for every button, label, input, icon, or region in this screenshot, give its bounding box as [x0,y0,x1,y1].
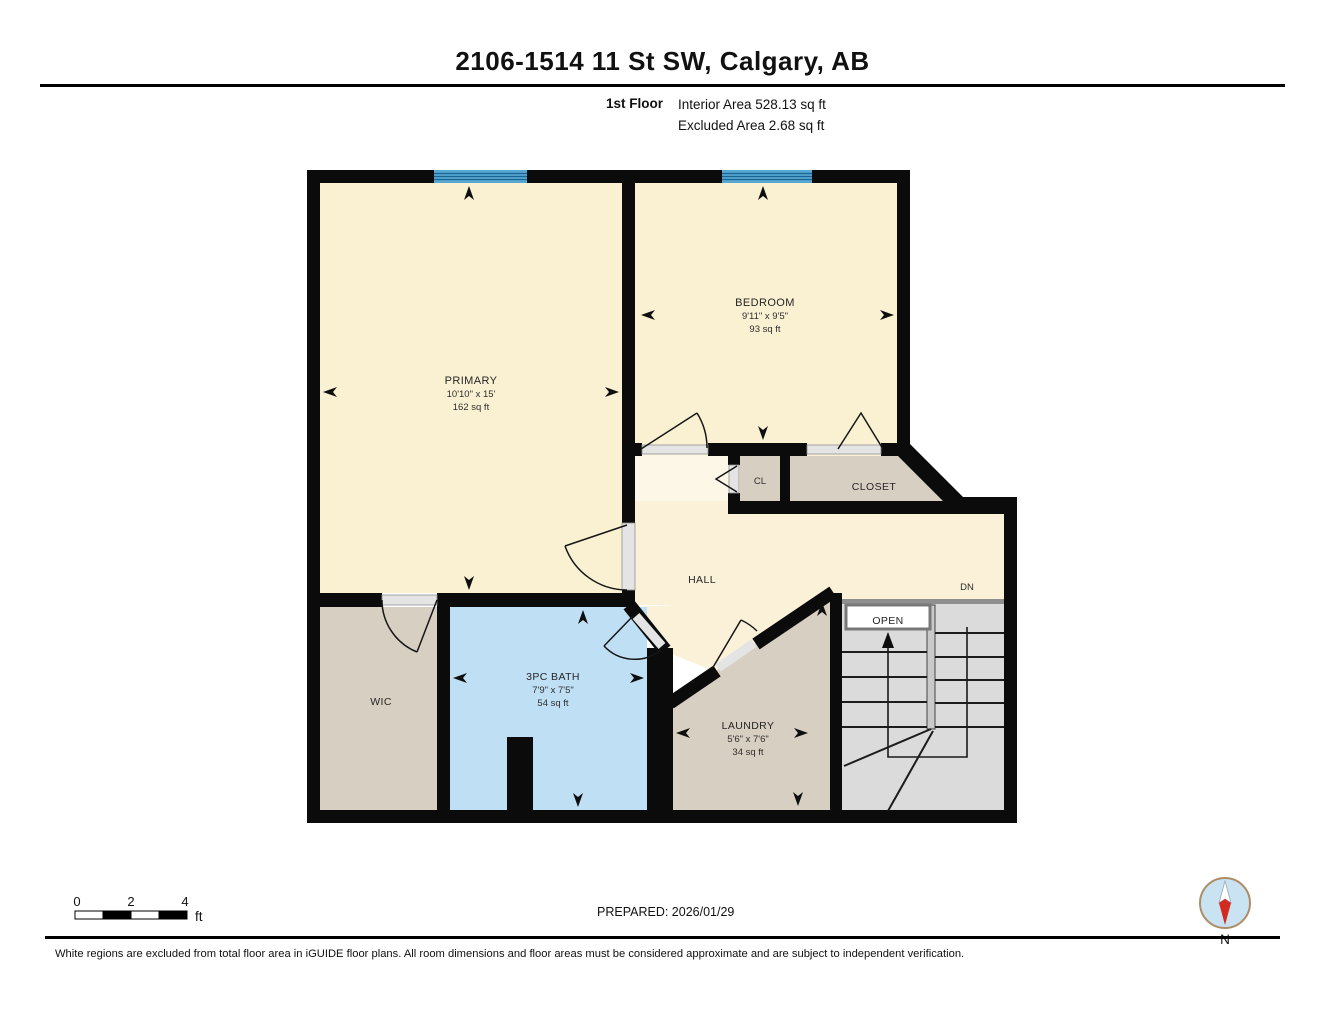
scale-unit: ft [195,909,203,924]
wic-label: WIC [370,696,392,708]
primary-area: 162 sq ft [453,402,490,413]
scale-0: 0 [73,894,80,909]
bedroom-area: 93 sq ft [749,324,781,335]
closet-door-sill [807,445,881,454]
bath-area: 54 sq ft [537,698,569,709]
laundry-area: 34 sq ft [732,747,764,758]
primary-dims: 10'10" x 15' [447,389,496,400]
area-summary: Interior Area 528.13 sq ft Excluded Area… [678,94,826,136]
closet-label: CLOSET [852,481,897,493]
laundry-label: LAUNDRY [722,720,775,732]
dn-label: DN [960,582,974,593]
bath-label: 3PC BATH [526,671,580,683]
excluded-area: Excluded Area 2.68 sq ft [678,115,826,136]
scale-2: 2 [127,894,134,909]
interior-area: Interior Area 528.13 sq ft [678,94,826,115]
floorplan-drawing: OPEN PRIMARY 10'10" x 15' 162 sq ft [307,170,1017,823]
bedroom-label: BEDROOM [735,297,795,309]
window-bedroom [722,170,812,183]
bedroom-dims: 9'11" x 9'5" [742,311,788,322]
stairwell-edge [842,599,1004,604]
window-primary [434,170,527,183]
floor-summary: 1st Floor Interior Area 528.13 sq ft Exc… [505,94,826,136]
open-label: OPEN [872,615,903,627]
bath-dims: 7'9" x 7'5" [532,685,574,696]
wic-room [320,607,437,810]
scale-4: 4 [181,894,188,909]
hall-label: HALL [688,574,716,586]
laundry-dims: 5'6" x 7'6" [727,734,769,745]
scale-bar: 0 2 4 ft [68,893,228,929]
page-title: 2106-1514 11 St SW, Calgary, AB [0,46,1325,77]
wic-door-sill [382,595,437,605]
disclaimer-text: White regions are excluded from total fl… [55,948,964,960]
bedroom-door-sill [642,445,708,454]
primary-label: PRIMARY [445,375,498,387]
footer-divider [45,936,1280,939]
compass-n-label: N [1220,932,1230,947]
primary-room [320,183,622,593]
primary-door-sill [622,523,635,590]
prepared-date: PREPARED: 2026/01/29 [597,905,734,919]
floorplan-page: 2106-1514 11 St SW, Calgary, AB 1st Floo… [0,0,1325,1024]
stairwell [842,603,1004,810]
header-divider [40,84,1285,87]
cl-label: CL [754,476,766,487]
floor-label: 1st Floor [505,94,663,136]
